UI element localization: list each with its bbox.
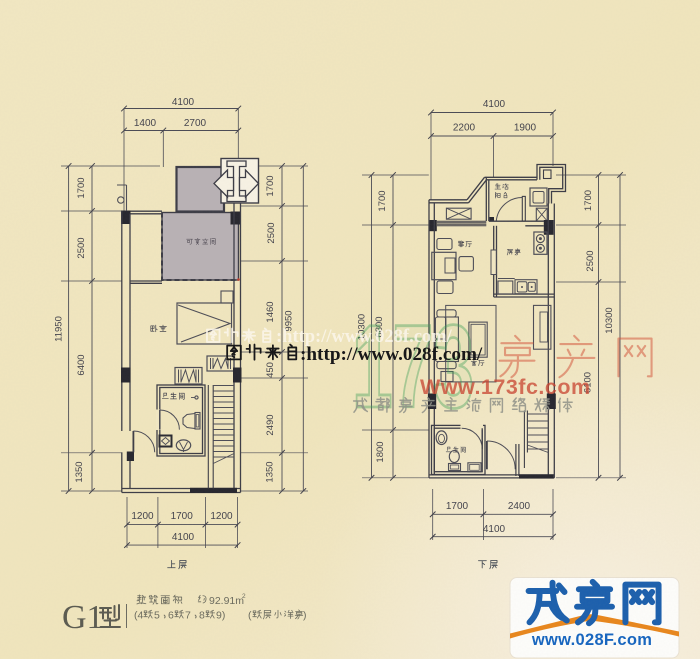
svg-text:www.028F.com: www.028F.com [531,631,652,649]
svg-text:2490: 2490 [265,414,276,435]
svg-text:1700: 1700 [171,511,194,522]
svg-text:1800: 1800 [375,441,386,462]
svg-text:11950: 11950 [54,316,65,342]
svg-text:6: 6 [168,610,174,622]
svg-text:1700: 1700 [76,177,87,198]
svg-text:1700: 1700 [446,501,469,512]
svg-text:4100: 4100 [172,532,195,543]
svg-text:5: 5 [154,610,160,622]
svg-text:1460: 1460 [265,301,276,322]
svg-text:4100: 4100 [483,99,506,110]
svg-text:(4: (4 [134,610,143,622]
svg-text:1700: 1700 [265,175,276,196]
svg-text:450: 450 [265,362,276,378]
svg-text:2: 2 [242,593,246,600]
svg-text:1400: 1400 [134,118,157,129]
svg-text:G1: G1 [62,599,104,636]
svg-text:6400: 6400 [76,354,87,375]
svg-text:9): 9) [216,610,225,622]
svg-text:): ) [303,610,307,622]
svg-text:Www.173fc.com: Www.173fc.com [420,375,591,399]
svg-text:2500: 2500 [585,250,596,271]
svg-text:92.91m: 92.91m [209,595,244,607]
svg-text:1700: 1700 [583,190,594,211]
svg-text::http://www.028f.com/: :http://www.028f.com/ [300,344,483,365]
svg-text:8: 8 [199,610,205,622]
svg-text:1700: 1700 [377,190,388,211]
svg-text:2500: 2500 [266,222,277,243]
svg-text:4100: 4100 [172,97,195,108]
svg-text:(: ( [248,610,252,622]
svg-text:2200: 2200 [453,123,476,134]
svg-text:4100: 4100 [483,524,506,535]
svg-text:1900: 1900 [514,123,537,134]
svg-text:173: 173 [352,300,474,432]
svg-text:7: 7 [185,610,191,622]
svg-text:1200: 1200 [131,511,154,522]
svg-text:2700: 2700 [184,118,207,129]
svg-text:1200: 1200 [210,511,233,522]
svg-text:2400: 2400 [508,501,531,512]
svg-text:1350: 1350 [265,461,276,482]
svg-text:10300: 10300 [604,307,615,333]
svg-text:1350: 1350 [74,461,85,482]
svg-text:2500: 2500 [76,237,87,258]
